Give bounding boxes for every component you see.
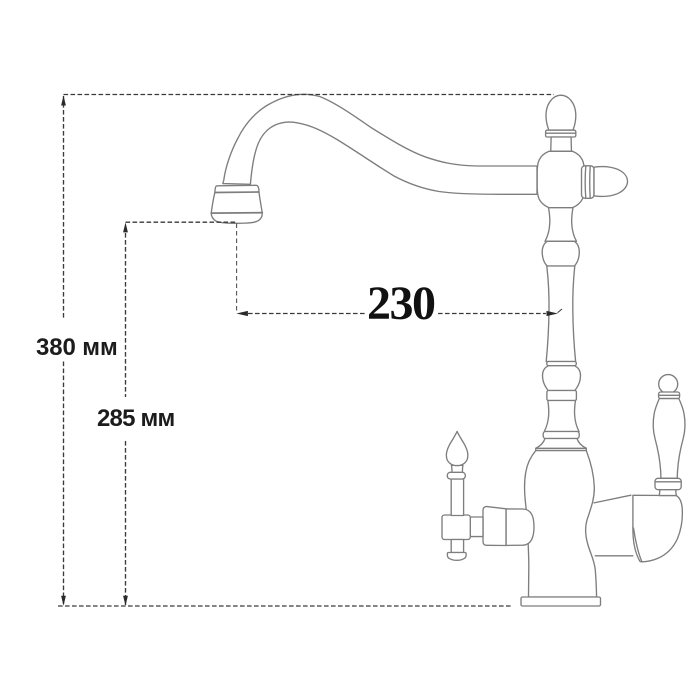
svg-text:230: 230	[367, 277, 435, 330]
svg-text:380 мм: 380 мм	[36, 334, 118, 361]
svg-text:285 мм: 285 мм	[97, 405, 174, 432]
